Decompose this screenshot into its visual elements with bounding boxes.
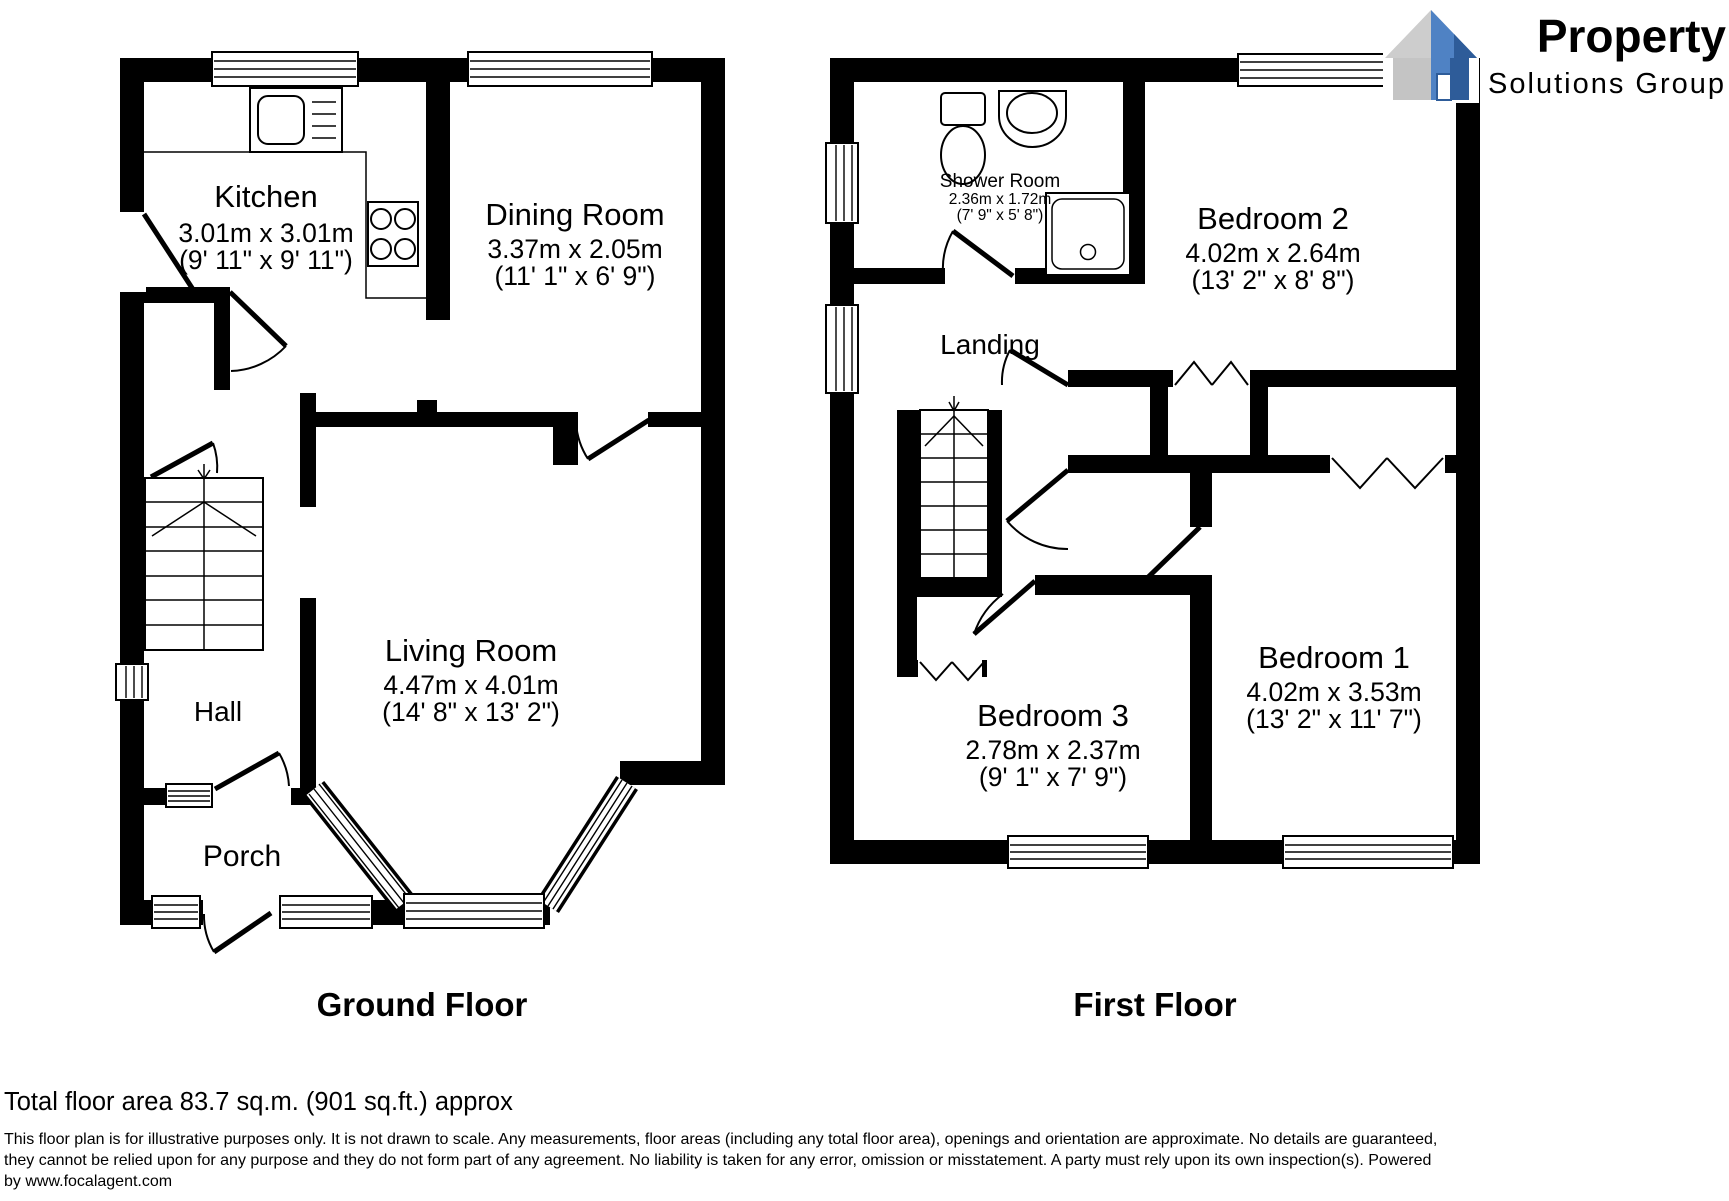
first-stairs-symbol [920,396,988,578]
dining-metric: 3.37m x 2.05m [487,234,662,264]
landing-label: Landing [940,329,1040,360]
ground-floor-plan: Kitchen 3.01m x 3.01m (9' 11" x 9' 11") … [116,52,725,1023]
basin-symbol [999,91,1066,147]
total-floor-area: Total floor area 83.7 sq.m. (901 sq.ft.)… [4,1088,513,1116]
porch-label: Porch [203,840,281,873]
living-label: Living Room [385,633,557,668]
kitchen-window [212,52,358,86]
porch-hall-door [215,753,289,789]
bedroom2-imperial: (13' 2" x 8' 8") [1192,265,1355,295]
logo: Property Solutions Group [1383,3,1726,103]
logo-brand: Property [1537,10,1727,62]
kitchen-door [230,292,286,371]
living-metric: 4.47m x 4.01m [383,670,558,700]
porch-divider-window [166,784,212,807]
hall-label: Hall [194,696,242,727]
bedroom2-label: Bedroom 2 [1197,201,1349,236]
bedroom1-label: Bedroom 1 [1258,640,1410,675]
porch-side-window [152,896,200,928]
bedroom2-window [1238,54,1402,86]
bedroom1-window [1283,836,1453,868]
disclaimer-line-2: they cannot be relied upon for any purpo… [4,1152,1431,1169]
disclaimer-line-3: by www.focalagent.com [4,1173,172,1190]
shower-label: Shower Room [940,171,1060,192]
first-floor-plan: Shower Room 2.36m x 1.72m (7' 9" x 5' 8"… [826,54,1480,1023]
kitchen-sink-symbol [250,88,342,152]
landing-window [826,305,858,393]
shower-metric: 2.36m x 1.72m [949,191,1052,208]
dining-label: Dining Room [485,197,664,232]
hob-symbol [368,202,418,266]
disclaimer-line-1: This floor plan is for illustrative purp… [4,1131,1437,1148]
logo-subtitle: Solutions Group [1488,68,1726,100]
hall-cupboard-door [151,443,217,477]
kitchen-metric: 3.01m x 3.01m [178,218,353,248]
ground-stairs-symbol [145,464,263,650]
dining-window [468,52,652,86]
bedroom3-window [1008,836,1148,868]
first-labels: Shower Room 2.36m x 1.72m (7' 9" x 5' 8"… [940,171,1422,1023]
bay-window [309,780,632,909]
bedroom3-imperial: (9' 1" x 7' 9") [979,762,1127,792]
floorplan-canvas: Kitchen 3.01m x 3.01m (9' 11" x 9' 11") … [0,0,1729,1201]
first-floor-title: First Floor [1073,986,1236,1023]
landing-corridor-door [1007,470,1068,549]
porch-front-window [280,896,372,928]
footer-text: Total floor area 83.7 sq.m. (901 sq.ft.)… [4,1088,1437,1190]
bedroom2-metric: 4.02m x 2.64m [1185,238,1360,268]
bay-front-window [404,894,544,928]
kitchen-imperial: (9' 11" x 9' 11") [179,245,353,275]
bedroom3-label: Bedroom 3 [977,698,1129,733]
living-room-door [576,420,649,459]
ground-floor-title: Ground Floor [317,986,528,1023]
bedroom1-imperial: (13' 2" x 11' 7") [1246,704,1422,734]
floorplan-page: Kitchen 3.01m x 3.01m (9' 11" x 9' 11") … [0,0,1729,1201]
dining-imperial: (11' 1" x 6' 9") [494,261,655,291]
living-imperial: (14' 8" x 13' 2") [382,697,560,727]
shower-tray-symbol [1046,193,1130,275]
bedroom1-metric: 4.02m x 3.53m [1246,677,1421,707]
bedroom3-metric: 2.78m x 2.37m [965,735,1140,765]
hall-window [116,664,148,700]
kitchen-label: Kitchen [214,179,317,214]
shower-room-window [826,143,858,223]
shower-imperial: (7' 9" x 5' 8") [957,207,1044,224]
